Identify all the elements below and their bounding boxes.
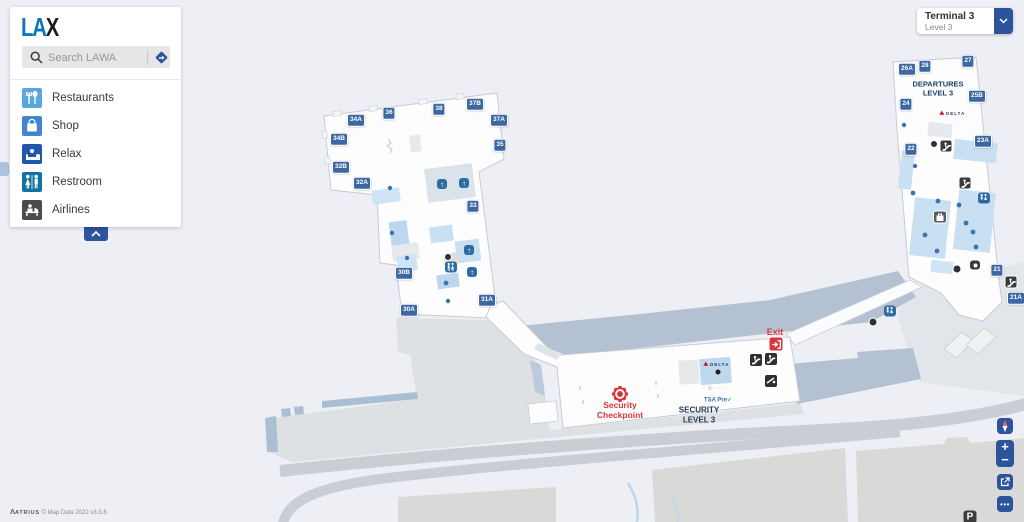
svg-text:DELTA: DELTA [710, 362, 729, 367]
svg-text:DELTA: DELTA [946, 111, 965, 116]
